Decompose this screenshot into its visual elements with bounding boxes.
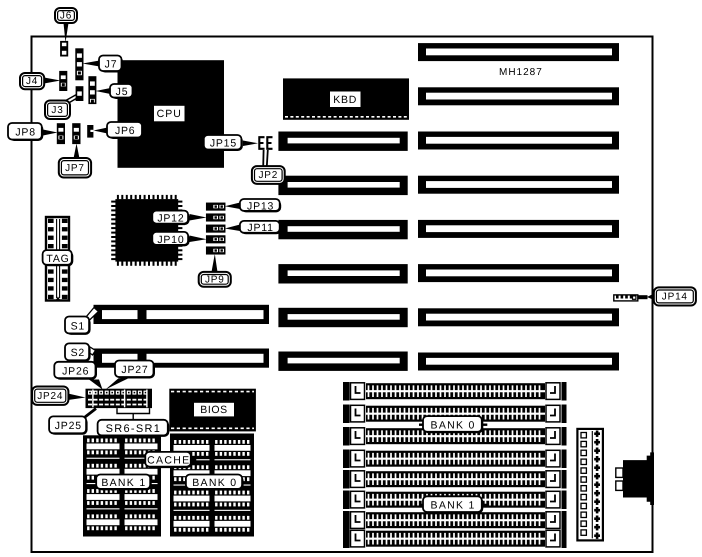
svg-text:JP9: JP9 xyxy=(205,275,225,286)
svg-text:JP8: JP8 xyxy=(15,127,36,139)
svg-text:J6: J6 xyxy=(60,11,72,22)
svg-text:JP14: JP14 xyxy=(662,292,688,303)
svg-text:JP25: JP25 xyxy=(55,420,82,432)
svg-text:BIOS: BIOS xyxy=(200,404,228,416)
svg-text:CPU: CPU xyxy=(157,108,182,120)
svg-text:BANK 1: BANK 1 xyxy=(431,500,476,512)
svg-text:JP12: JP12 xyxy=(157,212,184,224)
svg-text:JP10: JP10 xyxy=(157,234,184,246)
svg-text:KBD: KBD xyxy=(333,94,357,106)
svg-text:TAG: TAG xyxy=(46,253,69,265)
svg-text:J4: J4 xyxy=(26,76,38,87)
svg-text:JP26: JP26 xyxy=(62,365,89,377)
svg-text:JP15: JP15 xyxy=(210,138,237,150)
svg-text:S2: S2 xyxy=(71,347,85,359)
svg-text:S1: S1 xyxy=(71,320,85,332)
svg-text:BANK 0: BANK 0 xyxy=(431,419,476,431)
svg-text:JP13: JP13 xyxy=(247,200,274,212)
svg-text:J7: J7 xyxy=(105,59,118,71)
svg-text:J3: J3 xyxy=(51,105,63,116)
svg-text:JP24: JP24 xyxy=(37,391,63,402)
svg-text:JP6: JP6 xyxy=(115,125,136,137)
svg-text:MH1287: MH1287 xyxy=(499,67,543,78)
svg-text:SR6-SR1: SR6-SR1 xyxy=(106,423,162,435)
svg-text:JP2: JP2 xyxy=(258,170,278,181)
svg-text:J5: J5 xyxy=(116,86,129,98)
svg-text:BANK 0: BANK 0 xyxy=(192,477,237,489)
svg-text:JP27: JP27 xyxy=(121,364,148,376)
svg-text:BANK 1: BANK 1 xyxy=(101,477,146,489)
svg-text:JP7: JP7 xyxy=(65,163,85,174)
svg-text:JP11: JP11 xyxy=(247,222,273,234)
svg-text:CACHE: CACHE xyxy=(147,455,190,467)
